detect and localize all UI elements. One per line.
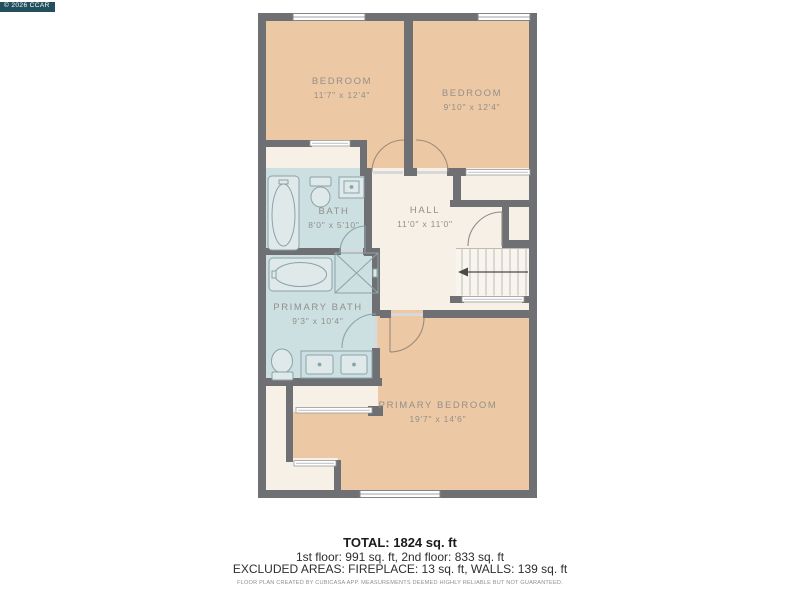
room-label-primary-bedroom: PRIMARY BEDROOM 19'7" x 14'6" <box>379 400 498 424</box>
sliding-door <box>462 297 524 303</box>
window <box>478 14 530 21</box>
sink-icon <box>339 177 364 198</box>
wall-outer-right <box>529 13 537 498</box>
room-label-primary-bath: PRIMARY BATH 9'3" x 10'4" <box>273 302 362 326</box>
wall-bedroom-divider <box>404 13 413 173</box>
wall-segment <box>450 200 537 207</box>
room-dimensions: 11'0" x 11'0" <box>397 219 453 229</box>
wall-outer-left <box>258 13 266 498</box>
room-name: HALL <box>397 205 453 216</box>
wall-segment <box>509 240 537 248</box>
room-dimensions: 11'7" x 12'4" <box>312 90 372 100</box>
room-dimensions: 19'7" x 14'6" <box>379 414 498 424</box>
room-label-hall: HALL 11'0" x 11'0" <box>397 205 453 229</box>
sliding-door <box>296 408 372 414</box>
wall-segment <box>453 176 461 202</box>
room-dimensions: 8'0" x 5'10" <box>308 220 360 230</box>
sliding-door <box>466 170 530 176</box>
bathtub-icon <box>269 258 332 291</box>
room-label-bedroom-2: BEDROOM 9'10" x 12'4" <box>442 88 502 112</box>
room-name: PRIMARY BEDROOM <box>379 400 498 411</box>
wall-segment <box>447 168 466 176</box>
room-label-bedroom-1: BEDROOM 11'7" x 12'4" <box>312 76 372 100</box>
window <box>360 491 440 498</box>
staircase <box>456 248 529 296</box>
room-name: BEDROOM <box>442 88 502 99</box>
floor-plan-page: © 2026 CCAR <box>0 0 800 600</box>
disclaimer-text: FLOOR PLAN CREATED BY CUBICASA APP. MEAS… <box>0 580 800 586</box>
room-dimensions: 9'3" x 10'4" <box>273 316 362 326</box>
wall-segment <box>262 140 312 147</box>
wall-primary-bath-right <box>372 248 380 316</box>
excluded-areas-text: EXCLUDED AREAS: FIREPLACE: 13 sq. ft, WA… <box>0 562 800 576</box>
sliding-door <box>294 461 336 467</box>
room-dimensions: 9'10" x 12'4" <box>442 102 502 112</box>
total-area-text: TOTAL: 1824 sq. ft <box>0 535 800 550</box>
toilet-icon <box>310 177 331 207</box>
wall-segment <box>363 248 372 255</box>
toilet-icon <box>272 349 294 380</box>
wall-segment <box>450 310 537 318</box>
room-name: BEDROOM <box>312 76 372 87</box>
floor-plan-canvas <box>0 0 800 600</box>
sliding-door <box>310 141 350 147</box>
wall-segment <box>286 386 293 462</box>
window <box>293 14 365 21</box>
room-name: BATH <box>308 206 360 217</box>
wall-segment <box>404 168 417 176</box>
wall-segment <box>380 310 391 318</box>
wall-segment <box>423 310 458 318</box>
wall-segment <box>502 207 509 248</box>
room-name: PRIMARY BATH <box>273 302 362 313</box>
room-label-bath: BATH 8'0" x 5'10" <box>308 206 360 230</box>
bathtub-icon <box>268 176 299 250</box>
